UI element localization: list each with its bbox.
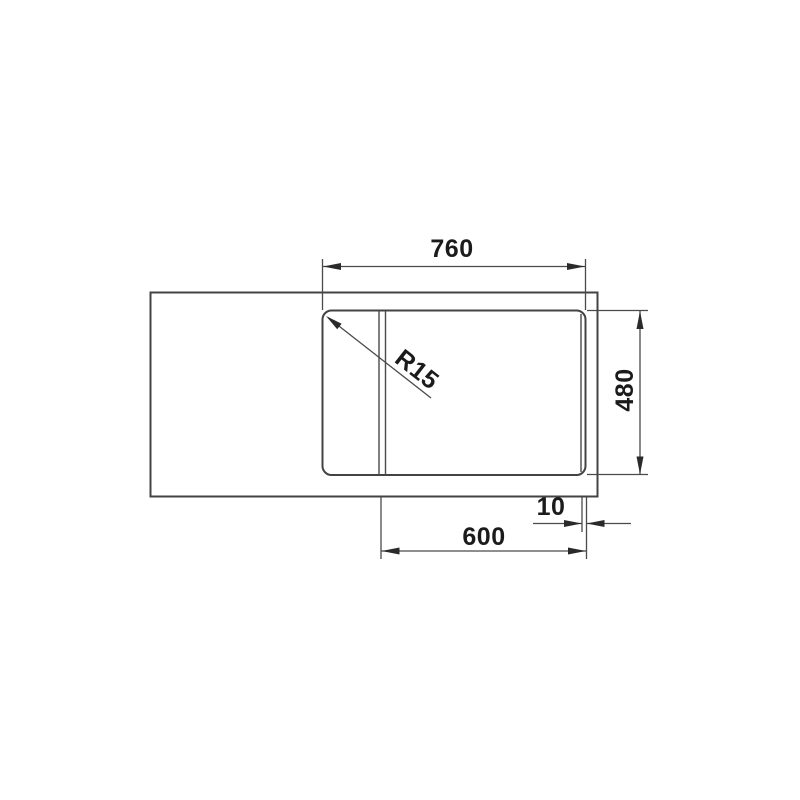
dim-arrow bbox=[567, 263, 585, 270]
dim-arrow bbox=[382, 548, 400, 555]
dim-right-height-label: 480 bbox=[611, 368, 639, 411]
dim-top-width-label: 760 bbox=[430, 235, 473, 263]
dim-arrow bbox=[637, 457, 644, 475]
dim-arrow bbox=[587, 520, 605, 527]
leader-arrow bbox=[326, 316, 342, 329]
dim-bottom-width-label: 600 bbox=[462, 523, 505, 551]
bowl-divider-lines bbox=[379, 311, 386, 476]
sink-bowl-outline bbox=[323, 311, 586, 476]
dim-arrow bbox=[323, 263, 341, 270]
sink-dimension-drawing: 760 480 10 600 bbox=[0, 0, 800, 800]
dimension-right-height: 480 bbox=[587, 311, 648, 475]
dimension-top-width: 760 bbox=[323, 235, 586, 310]
worktop-outline bbox=[151, 293, 598, 497]
dim-arrow bbox=[637, 311, 644, 329]
dim-arrow bbox=[564, 520, 582, 527]
dim-arrow bbox=[568, 548, 586, 555]
dimension-drawing-page: 760 480 10 600 bbox=[0, 0, 800, 800]
dimension-bottom-offset: 10 bbox=[533, 493, 631, 559]
dim-bottom-offset-label: 10 bbox=[537, 493, 566, 521]
